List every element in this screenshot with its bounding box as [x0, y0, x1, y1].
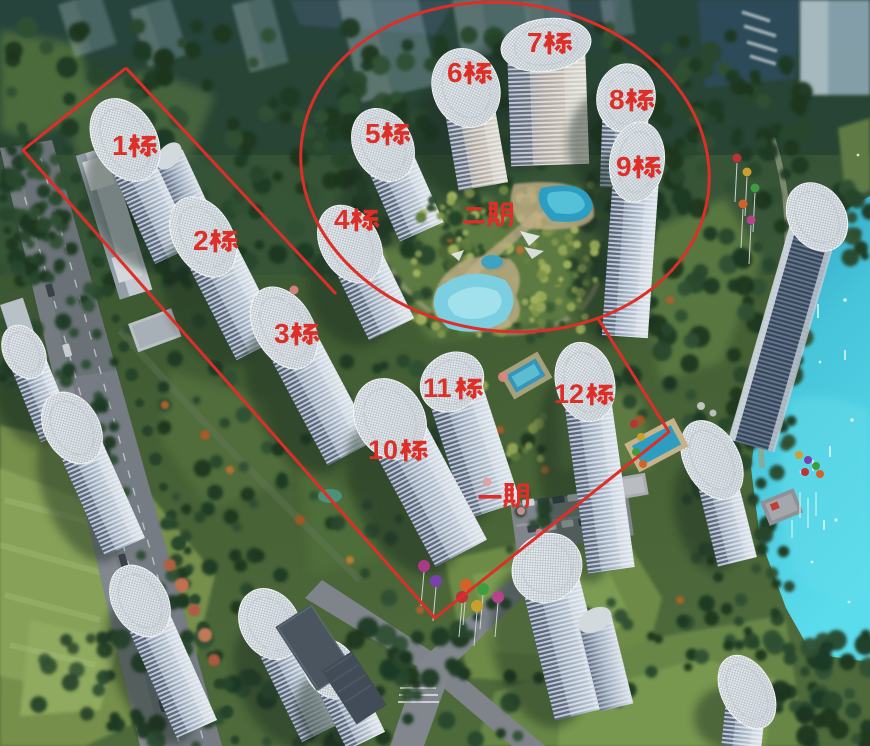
svg-text:8: 8 — [609, 84, 625, 115]
svg-text:1: 1 — [112, 130, 128, 161]
svg-text:11: 11 — [423, 373, 452, 403]
svg-text:9: 9 — [616, 151, 632, 182]
svg-text:2: 2 — [193, 225, 209, 256]
svg-text:12: 12 — [554, 379, 584, 409]
svg-text:3: 3 — [274, 318, 290, 349]
svg-text:6: 6 — [447, 57, 463, 88]
svg-text:5: 5 — [365, 118, 381, 149]
svg-text:10: 10 — [368, 435, 398, 465]
svg-text:7: 7 — [527, 27, 543, 58]
svg-text:4: 4 — [334, 204, 350, 235]
